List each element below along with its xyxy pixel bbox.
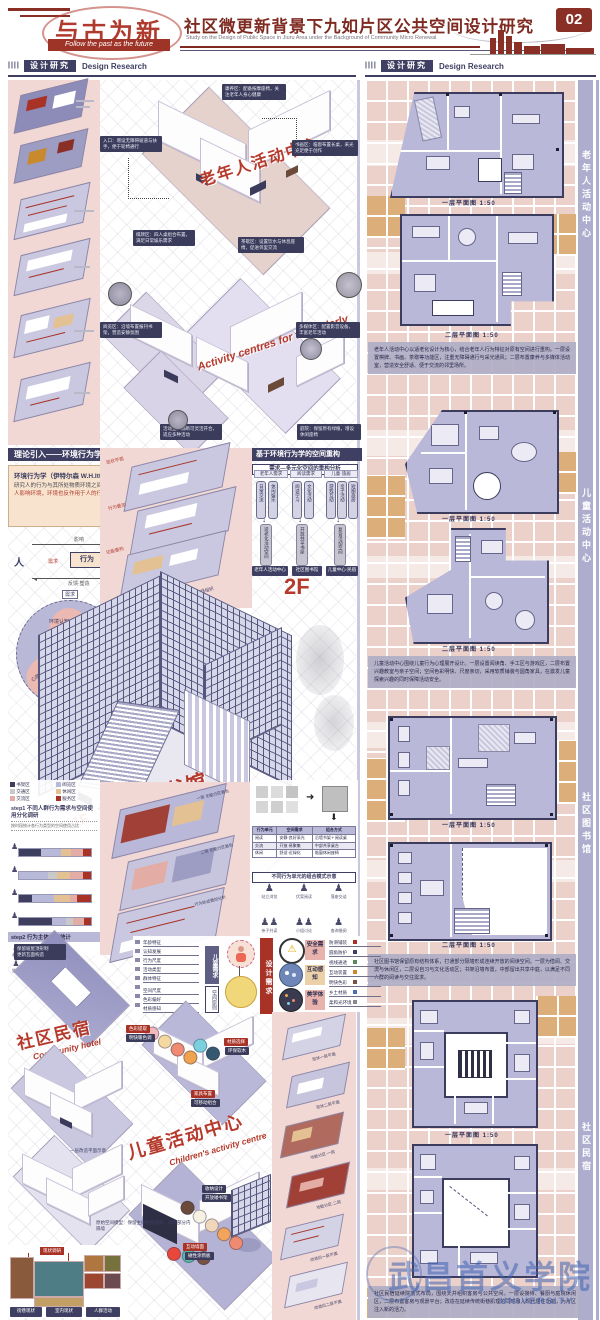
section-header-right: |||| 设计研究 Design Research <box>365 60 596 78</box>
space-circle-icon <box>225 976 257 1008</box>
library-plan-2f <box>388 842 552 941</box>
photo <box>34 1261 84 1297</box>
diagram-person: 人 <box>14 554 24 569</box>
elderly-process-strip <box>8 80 100 445</box>
section-bars-icon: |||| <box>365 62 377 69</box>
require-item: 认知发展 <box>143 949 199 956</box>
legend-swatch <box>10 782 15 787</box>
elderly-plan-1f <box>390 92 564 198</box>
recon-bar: 游戏互动 <box>329 484 334 502</box>
people-sketch: ♟站立浏览 <box>252 884 287 918</box>
university-watermark: 武昌首义学院 <box>388 1252 598 1298</box>
recon-bar: 日常交流 <box>259 484 264 502</box>
people-sketch: ♟伏案阅读 <box>287 884 322 918</box>
analysis-chip: 磁性涂鸦板 <box>185 1252 214 1260</box>
analysis-chip: 收纳设计 <box>202 1185 226 1193</box>
university-watermark-en: UNIVERSITY <box>500 1296 574 1306</box>
section-rule <box>365 75 596 77</box>
behavior-bar-row: ♟ <box>11 882 97 903</box>
design-require-bar: 设计需求 <box>260 938 273 1014</box>
analysis-chip: 家具布置 <box>191 1090 215 1098</box>
page-subtitle: Study on the Design of Public Space in J… <box>186 35 486 41</box>
recon-group-title: 儿童·旅居 <box>324 470 358 478</box>
legend-item: 阅览区 <box>56 782 102 788</box>
photo <box>84 1255 104 1272</box>
elderly-paragraph: 老年人活动中心以适老化设计为核心，结合老年人行为特征对原有空间进行重构。一层设置… <box>368 342 576 374</box>
recon-mid: 适老化活动空间 <box>264 527 269 559</box>
poster-page: 与古为新 Follow the past as the future 社区微更新… <box>0 0 600 1320</box>
analysis-chip: 可移动组合 <box>191 1099 220 1107</box>
leader-line <box>262 118 297 149</box>
zoning-stack-panel: 一层 功能分区着色 二层 功能分区着色 行为轨迹叠加分析 <box>100 782 250 955</box>
recon-bar: 亲子活动 <box>340 484 345 502</box>
collage-label: 人群活动 <box>86 1307 120 1317</box>
plan-caption: 一层平面图 1:50 <box>442 198 496 207</box>
recon-group-title: 阅读需求 <box>290 470 322 478</box>
strip-note: 现状一层平面 <box>312 1051 337 1063</box>
recon-result: 老年人活动中心 <box>252 566 288 576</box>
hotel-roof-note: 保留坡屋顶形制 更新瓦面构造 <box>14 944 66 960</box>
merged-unit-icon <box>322 786 348 812</box>
elderly-axonometric-2 <box>100 285 358 447</box>
legend-swatch <box>56 782 61 787</box>
sidebar-label-hotel: 社区民宿 <box>580 1122 593 1174</box>
require-left-box2: 空间原则 <box>205 986 219 1013</box>
analysis-chip: 开放矮书架 <box>202 1194 231 1202</box>
legend-swatch <box>56 789 61 794</box>
legend-item: 休闲区 <box>56 789 102 795</box>
children-process-strip: 现状一层平面 现状二层平面 功能分区·一层 功能分区·二层 改造后一层平面 改造… <box>272 1012 356 1320</box>
sidebar-label-library: 社区图书馆 <box>580 792 593 857</box>
model-caption: 原始空间模型：保留主体结构墙体，拆除部分内隔墙 <box>96 1220 192 1233</box>
require-item: 色彩偏好 <box>143 997 199 1004</box>
recon-bar: 文化活动 <box>307 484 312 502</box>
analysis-chip: 色彩提取 <box>126 1025 150 1033</box>
title-rule <box>180 46 480 48</box>
plan-caption: 二层平面图 1:50 <box>445 330 499 339</box>
legend-item: 服务区 <box>56 796 102 802</box>
behavior-bar-row: ♟ <box>11 905 97 926</box>
plan-caption: 一层平面图 1:50 <box>442 514 496 523</box>
iso-note: 多媒体区：配置影音设备，丰富老年活动 <box>296 322 360 338</box>
right-sidebar-line <box>596 80 599 1320</box>
legend-swatch <box>10 789 15 794</box>
behavior-bar-row: ♟ <box>11 859 97 880</box>
section-header-left: |||| 设计研究 Design Research <box>8 60 356 78</box>
require-item: 空间尺度 <box>143 988 199 995</box>
children-paragraph: 儿童活动中心围绕儿童行为心理展开设计。一层设置阅读角、手工区与游戏区，二层布置兴… <box>368 656 576 688</box>
recon-mid: 开放共享书屋 <box>300 527 305 554</box>
arrow-down-icon: ↓ <box>298 515 302 524</box>
legend-swatch <box>10 796 15 801</box>
child-circle-icon <box>227 940 255 968</box>
recon-mid: 复合活动空间 <box>338 527 343 554</box>
combo-table: 行为单元空间需求组合方式 阅读安静·良好采光沿墙书架＋阅读桌 交流开放·易聚集中… <box>252 826 356 858</box>
analysis-chip: 互动墙面 <box>183 1243 207 1251</box>
section-title-en: Design Research <box>82 62 147 71</box>
step1-note: 按时段统计各行为类型的空间使用占比 <box>11 821 97 831</box>
legend-swatch <box>56 796 61 801</box>
section-title-en: Design Research <box>439 62 504 71</box>
strip-note: 现状二层平面 <box>316 1099 341 1111</box>
detail-circle <box>336 272 362 298</box>
library-plan-1f <box>388 716 557 820</box>
circle-link-line <box>239 966 240 976</box>
analysis-chip: 环保软木 <box>225 1047 249 1055</box>
photo <box>104 1273 121 1289</box>
page-title: 社区微更新背景下九如片区公共空间设计研究 <box>184 13 484 37</box>
collage-label: 街巷现状 <box>10 1307 42 1317</box>
strip-note: 功能分区·二层 <box>316 1199 342 1211</box>
analysis-chip: 明快暖色调 <box>126 1034 155 1042</box>
arrow-down-icon: ↓ <box>336 515 340 524</box>
require-right-box: 安全需求 <box>305 940 325 960</box>
iso-note: 康养区：配备按摩座椅，关注老年人身心健康 <box>222 84 286 100</box>
sidebar-label-children: 儿童活动中心 <box>580 488 593 566</box>
logo-subtitle-bar: Follow the past as the future <box>48 39 170 51</box>
plan-caption: 一层平面图 1:50 <box>442 820 496 829</box>
section-title-cn: 设计研究 <box>24 60 76 72</box>
photo <box>10 1257 34 1299</box>
warning-circle-icon: ⚠ <box>279 938 305 964</box>
library-paragraph: 社区图书馆保留原有结构体系，打通部分隔墙形成连续开放的阅读空间。一层为借阅、交流… <box>368 954 576 986</box>
require-right-box: 美学体验 <box>305 990 325 1010</box>
combo-panel: ➜ ⬇ 行为单元空间需求组合方式 阅读安静·良好采光沿墙书架＋阅读桌 交流开放·… <box>250 780 358 955</box>
explode-label: 现状平面 <box>106 456 125 466</box>
iso-note: 庭院：保留原有绿植，增设休闲座椅 <box>297 424 361 440</box>
require-item: 活动类型 <box>143 967 199 974</box>
leader-line <box>128 158 169 199</box>
behavior-bar-row: ♟ <box>11 836 97 857</box>
legend-item: 书架区 <box>10 782 56 788</box>
require-item: 年龄特征 <box>143 940 199 947</box>
tree-sketch <box>296 625 344 695</box>
recon-bar: 休闲娱乐 <box>271 484 276 502</box>
legend-item: 交流区 <box>10 796 56 802</box>
section-rule <box>8 75 356 77</box>
photo <box>34 1297 84 1307</box>
collage-label: 室内现状 <box>46 1307 82 1317</box>
mini-icons-column <box>353 940 358 1008</box>
strip-note: 改造后二层平面 <box>314 1299 343 1312</box>
plan-caption: 二层平面图 1:50 <box>442 644 496 653</box>
header-deco-bar <box>8 8 70 11</box>
plan-caption: 一层平面图 1:50 <box>445 1130 499 1139</box>
survey-collage: 现状调研 街巷现状 室内现状 人群活动 <box>8 1245 128 1318</box>
section-title-cn: 设计研究 <box>381 60 433 72</box>
arrow-right-icon: ➜ <box>306 792 314 803</box>
recon-result: 儿童中心·民宿 <box>326 566 358 576</box>
recon-bar: 短期旅居 <box>351 484 356 502</box>
detail-circle <box>108 282 132 306</box>
header: 与古为新 Follow the past as the future 社区微更新… <box>0 0 600 58</box>
require-item: 群体特征 <box>143 976 199 983</box>
plan-caption: 二层平面图 1:50 <box>442 940 496 949</box>
recon-group-title: 老年人需求 <box>254 470 288 478</box>
require-right-box: 互动感知 <box>305 965 325 985</box>
strip-note: 功能分区·一层 <box>310 1149 336 1161</box>
iso-note: 书画区：临窗布置长桌，采光充足便于创作 <box>292 140 358 156</box>
recon-header: 基于环境行为学的空间重构 <box>252 448 362 461</box>
combo-sub: 不同行为单元的组合模式示意 <box>252 872 356 883</box>
photo <box>84 1273 104 1289</box>
requirements-diagram: 年龄特征 认知发展 行为尺度 活动类型 群体特征 空间尺度 色彩偏好 材质感知 … <box>133 936 360 1012</box>
arrowhead: ◂ <box>34 576 37 583</box>
people-sketch: ♟落座交谈 <box>321 884 356 918</box>
bullet-icon <box>135 940 140 1010</box>
legend-item: 交通区 <box>10 789 56 795</box>
diagram-behavior: 行为 <box>70 552 104 568</box>
interaction-circle-icon <box>279 963 303 987</box>
arrow-mid-label: 需求 <box>48 558 58 565</box>
explode-label: 功能重构 <box>106 546 125 556</box>
step1-title: step1 不同人群行为需求与空间使用分化调研 <box>8 804 100 821</box>
require-left-box: 儿童需求 <box>205 946 219 984</box>
hotel-plan-1f <box>412 1000 538 1128</box>
detail-circle <box>300 338 322 360</box>
analysis-chip: 材质选择 <box>224 1038 248 1046</box>
sidebar-label-elderly: 老年人活动中心 <box>580 150 593 241</box>
section-bars-icon: |||| <box>8 62 20 69</box>
iso-note: 阅览区：沿墙布置报刊书架，营造安静氛围 <box>100 322 162 338</box>
arrow-down-icon: ⬇ <box>330 812 338 823</box>
require-item: 行为尺度 <box>143 958 199 965</box>
arrow-down-icon: ↓ <box>262 515 266 524</box>
iso-note: 入口：增设无障碍坡道与扶手，便于轮椅通行 <box>100 136 162 152</box>
iso-note: 棋牌区：四人桌组合布置，满足日常娱乐需求 <box>133 230 195 246</box>
unit-grid-icon <box>256 786 302 816</box>
children-axonometric-main <box>133 1160 272 1320</box>
skyline-icon <box>486 28 596 56</box>
recon-bar: 阅读学习 <box>295 484 300 502</box>
strip-note: 改造后一层平面 <box>310 1251 339 1264</box>
aesthetic-circle-icon <box>279 988 303 1012</box>
collage-tag: 现状调研 <box>40 1247 64 1255</box>
iso-note: 茶歇区：设置饮水与休息座椅，促进邻里交流 <box>238 237 304 253</box>
tree-sketch <box>314 695 354 751</box>
detail-circle <box>168 410 188 430</box>
photo <box>104 1255 121 1272</box>
arrow-top-label: 影响 <box>74 536 84 543</box>
